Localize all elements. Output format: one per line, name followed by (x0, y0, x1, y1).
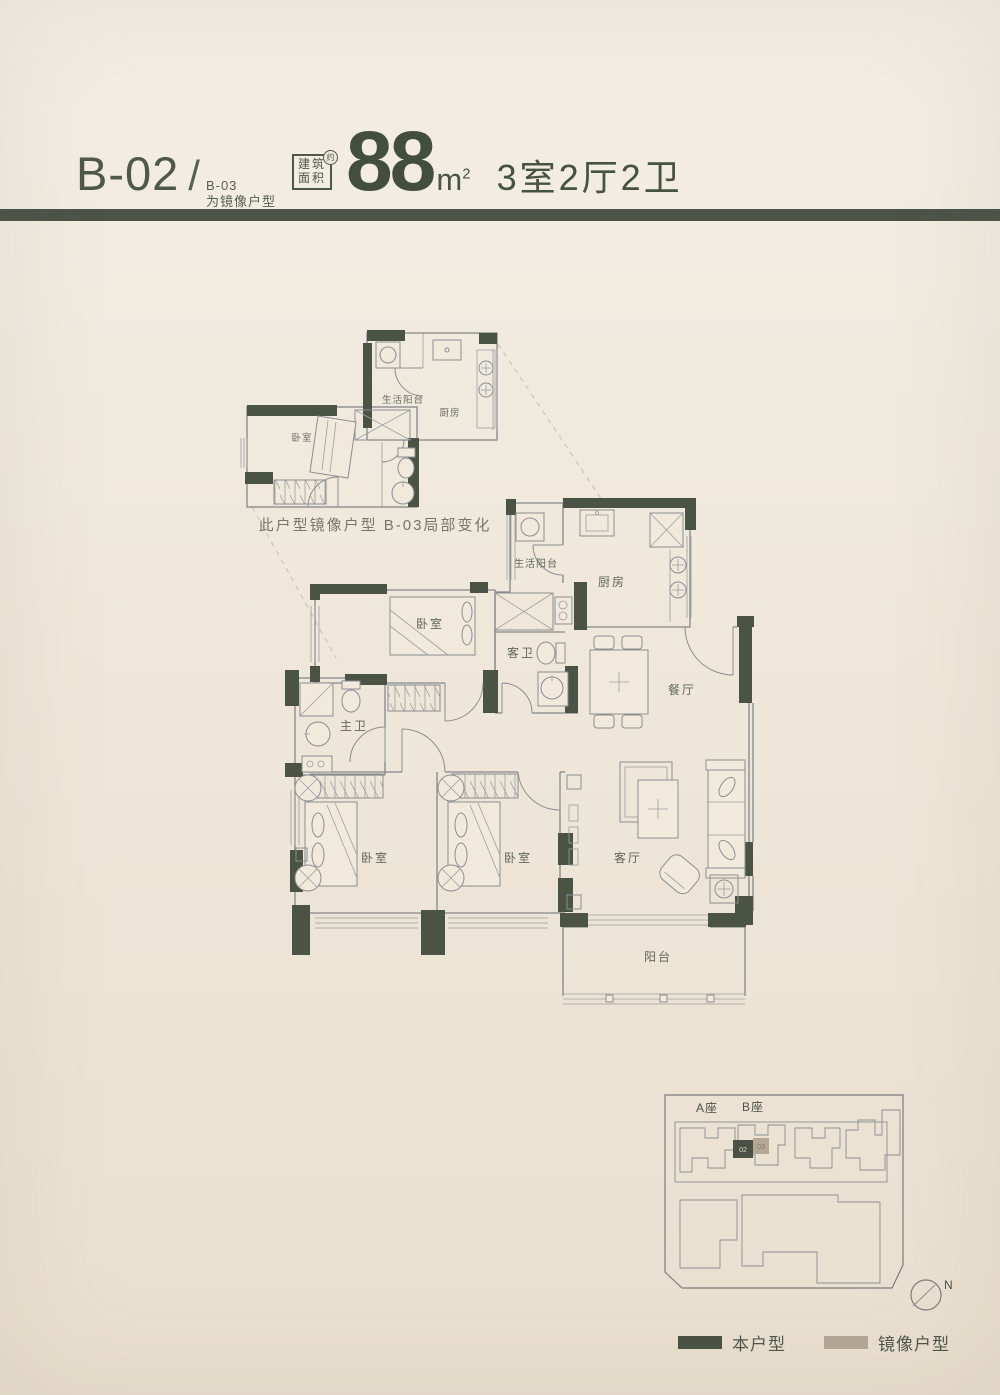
dining-table (590, 636, 648, 728)
inset-link-line-top (498, 344, 602, 500)
coffee-table (638, 780, 678, 838)
room-label-service-balcony: 生活阳台 (514, 557, 558, 570)
room-label-bedroom-top: 卧室 (416, 616, 444, 631)
floorplan-drawing: 生活阳台 厨房 卧室 此户型镜像户型 B-03局部变化 (230, 310, 770, 1030)
tower-footprints (680, 1110, 900, 1172)
site-unit-02-label: 02 (739, 1147, 747, 1154)
sofa (706, 760, 745, 878)
podium-footprints (680, 1195, 880, 1283)
room-label-dining: 餐厅 (668, 682, 696, 697)
kitchen-counter-unit (555, 597, 572, 624)
plan-legend: 本户型 镜像户型 (678, 1330, 950, 1355)
master-bath-basin (302, 722, 332, 772)
plant-table (710, 875, 738, 903)
north-compass-icon (911, 1280, 941, 1310)
mirror-code: B-03 (206, 178, 276, 194)
master-bath-shower (300, 683, 333, 716)
guest-bath-basin (538, 672, 568, 706)
legend-label-this: 本户型 (732, 1330, 786, 1355)
kitchen-stove (670, 550, 686, 622)
inset-room-label-kitchen: 厨房 (439, 407, 460, 419)
site-plan: 02 03 A座 B座 N (660, 1080, 960, 1340)
stamp-line1: 建筑 (298, 158, 326, 172)
tower-a-label: A座 (696, 1100, 718, 1115)
stamp-line2: 面积 (298, 172, 326, 186)
unit-code-separator: / (188, 152, 200, 200)
room-label-guest-bath: 客卫 (507, 645, 535, 660)
service-balcony-washer (516, 513, 544, 541)
stamp-approx-mark: 约 (323, 150, 338, 165)
site-boundary (665, 1095, 903, 1288)
inset-toilet (398, 448, 415, 478)
room-label-master-bath: 主卫 (340, 719, 368, 733)
floorplan-page: B-02 / B-03 为镜像户型 建筑 面积 约 88 m2 3室2厅2卫 (0, 0, 1000, 1395)
guest-bath-toilet (537, 642, 565, 664)
north-label: N (944, 1278, 954, 1292)
master-bath-toilet (342, 681, 360, 712)
inset-plan: 生活阳台 厨房 卧室 (241, 330, 497, 507)
kitchen-sink (580, 510, 614, 536)
legend-item-mirror-unit: 镜像户型 (824, 1330, 950, 1355)
inset-washer (376, 342, 400, 368)
tower-band (675, 1122, 887, 1182)
room-count-text: 3室2厅2卫 (497, 149, 683, 201)
unit-code: B-02 (76, 146, 179, 201)
plan-header: B-02 / B-03 为镜像户型 建筑 面积 约 88 m2 3室2厅2卫 (76, 124, 683, 209)
inset-room-label-service-balcony: 生活阳台 (382, 394, 424, 406)
legend-item-this-unit: 本户型 (678, 1330, 786, 1355)
room-label-balcony: 阳台 (644, 949, 672, 964)
room-label-bedroom-middle: 卧室 (504, 850, 532, 865)
kitchen-fridge (650, 513, 683, 547)
legend-swatch-mirror (824, 1336, 868, 1349)
inset-bed (310, 416, 356, 478)
room-label-living: 客厅 (614, 850, 642, 865)
armchair (656, 851, 703, 897)
inset-stove (477, 350, 495, 428)
room-label-kitchen: 厨房 (598, 574, 626, 589)
inset-caption: 此户型镜像户型 B-03局部变化 (259, 516, 492, 534)
tower-b-label: B座 (742, 1099, 764, 1114)
room-label-bedroom-left: 卧室 (361, 850, 389, 865)
hall-wardrobe (388, 685, 440, 711)
site-unit-03-label: 03 (757, 1144, 765, 1151)
inset-wardrobe (274, 480, 326, 504)
area-value: 88 (346, 124, 433, 200)
inset-room-label-bedroom: 卧室 (291, 432, 312, 444)
legend-swatch-this (678, 1336, 722, 1349)
main-plan: 生活阳台 厨房 卧室 客卫 餐厅 主卫 卧室 卧室 客厅 阳台 (285, 498, 754, 1004)
built-area-stamp: 建筑 面积 约 (292, 154, 332, 190)
area-unit: m2 (436, 162, 470, 198)
header-divider-bar (0, 209, 1000, 221)
legend-label-mirror: 镜像户型 (878, 1330, 950, 1355)
inset-kitchen-sink (433, 340, 461, 360)
hallway-closet (495, 593, 553, 630)
mirror-note: B-03 为镜像户型 (206, 178, 276, 209)
mirror-note-text: 为镜像户型 (206, 194, 276, 210)
